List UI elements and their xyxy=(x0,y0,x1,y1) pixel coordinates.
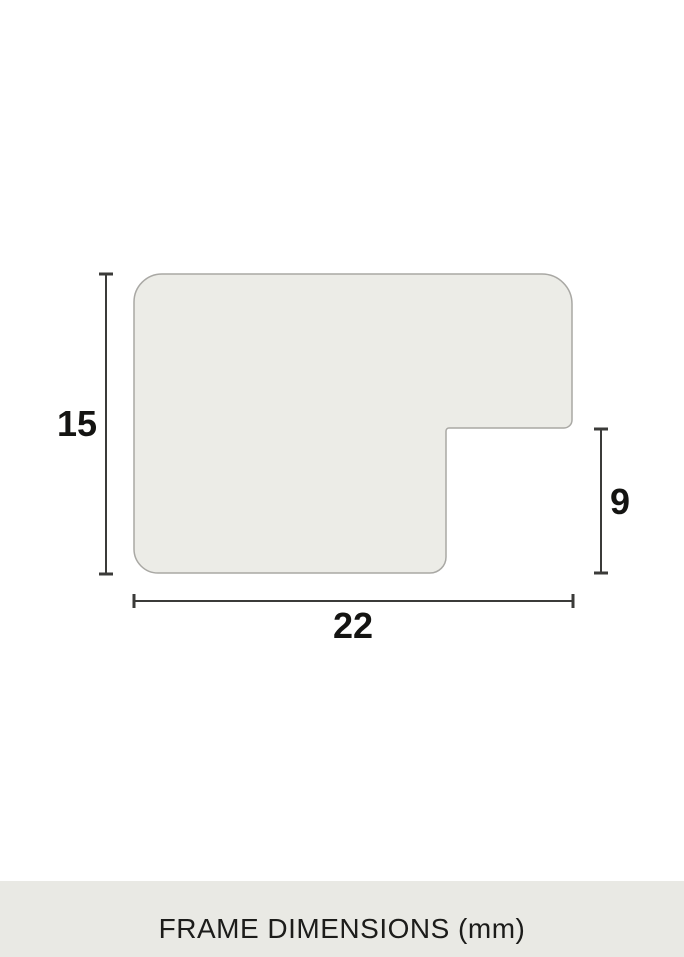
profile-drawing xyxy=(0,0,684,957)
frame-profile-shape xyxy=(134,274,572,573)
caption-bar: FRAME DIMENSIONS (mm) xyxy=(0,881,684,957)
width-dimension-label: 22 xyxy=(333,608,373,644)
depth-dimension-line xyxy=(594,429,608,573)
frame-dimension-diagram: 15 22 9 FRAME DIMENSIONS (mm) xyxy=(0,0,684,957)
depth-dimension-label: 9 xyxy=(610,484,630,520)
height-dimension-line xyxy=(99,274,113,574)
caption-text: FRAME DIMENSIONS (mm) xyxy=(159,913,526,945)
height-dimension-label: 15 xyxy=(57,406,97,442)
